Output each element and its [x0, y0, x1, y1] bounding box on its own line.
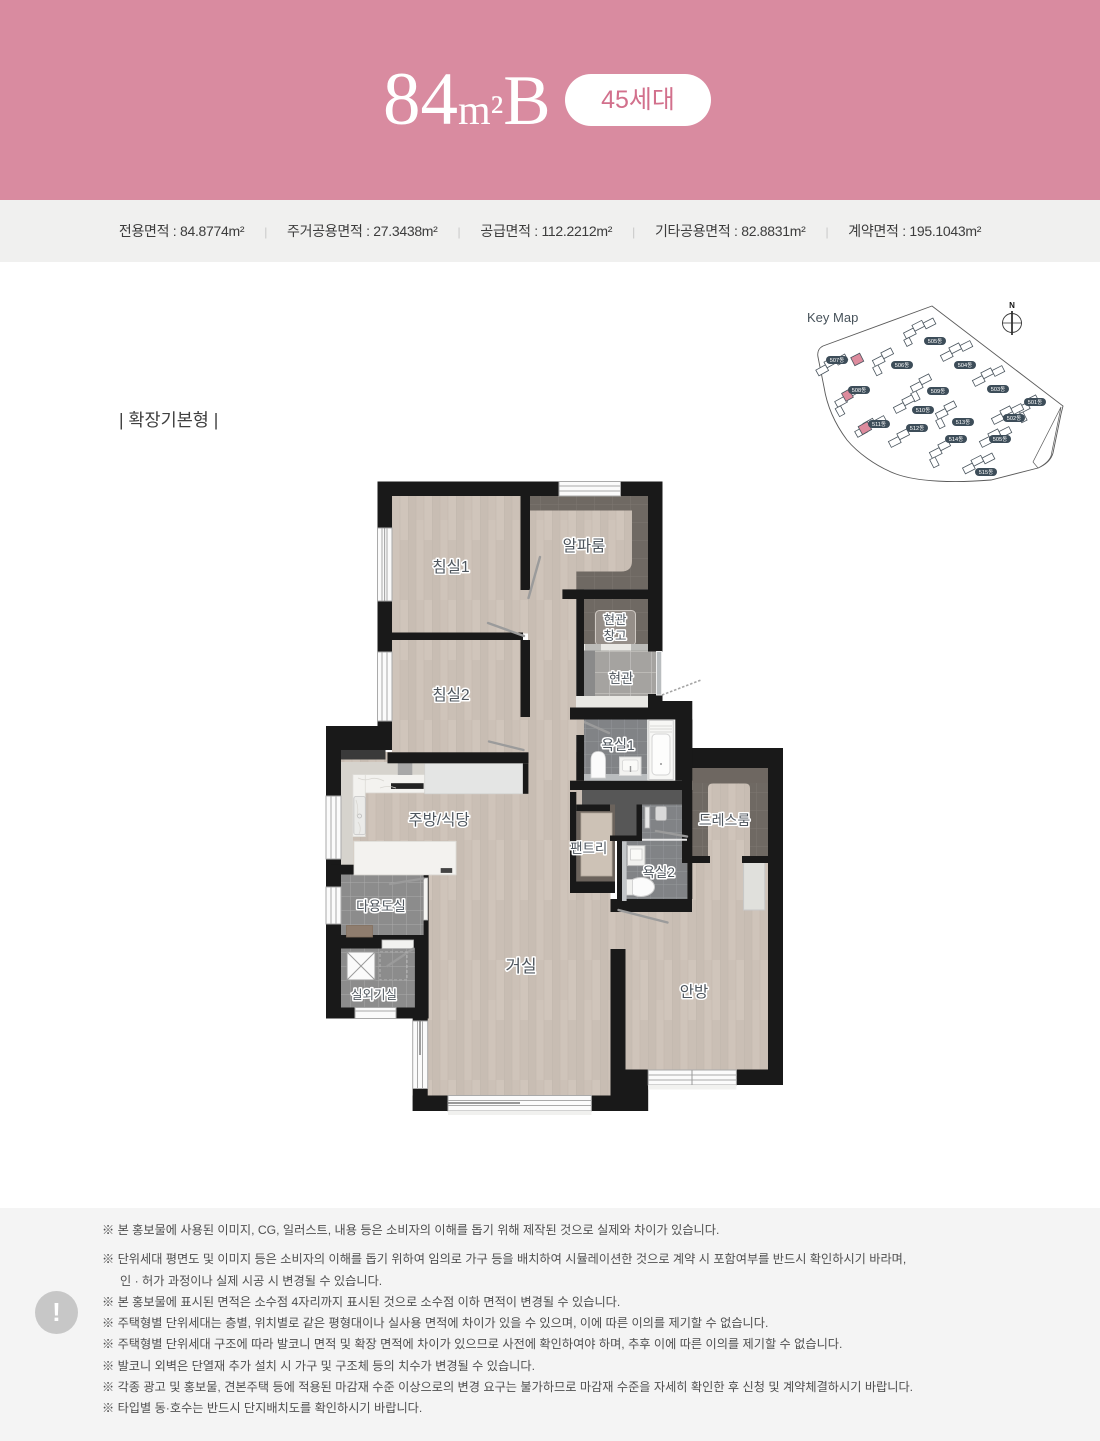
- svg-text:502동: 502동: [1007, 415, 1021, 422]
- svg-text:거실: 거실: [505, 957, 536, 976]
- svg-text:알파룸: 알파룸: [563, 537, 606, 555]
- svg-text:515동: 515동: [979, 469, 993, 476]
- svg-text:501동: 501동: [1028, 399, 1042, 406]
- svg-text:511동: 511동: [872, 421, 886, 428]
- svg-text:다용도실: 다용도실: [356, 899, 406, 914]
- svg-text:508동: 508동: [852, 387, 866, 394]
- svg-text:512동: 512동: [910, 425, 924, 432]
- svg-text:514동: 514동: [949, 436, 963, 443]
- svg-text:506동: 506동: [895, 362, 909, 369]
- svg-text:510동: 510동: [916, 407, 930, 414]
- svg-text:창고: 창고: [603, 629, 626, 643]
- svg-text:욕실2: 욕실2: [643, 865, 675, 880]
- svg-text:실외기실: 실외기실: [351, 988, 397, 1002]
- svg-text:509동: 509동: [931, 388, 945, 395]
- svg-text:현관: 현관: [609, 671, 634, 686]
- svg-text:503동: 503동: [991, 386, 1005, 393]
- svg-text:주방/식당: 주방/식당: [408, 811, 469, 829]
- svg-text:507동: 507동: [830, 357, 844, 364]
- svg-text:504동: 504동: [958, 362, 972, 369]
- svg-text:안방: 안방: [680, 983, 709, 1001]
- svg-text:505동: 505동: [928, 338, 942, 345]
- svg-text:드레스룸: 드레스룸: [699, 812, 751, 828]
- svg-text:침실1: 침실1: [432, 558, 469, 576]
- svg-text:현관: 현관: [603, 613, 627, 627]
- svg-text:팬트리: 팬트리: [570, 841, 607, 856]
- svg-text:욕실1: 욕실1: [601, 737, 635, 753]
- svg-text:505동: 505동: [993, 436, 1007, 443]
- svg-text:Key Map: Key Map: [807, 310, 858, 325]
- svg-text:N: N: [1009, 301, 1015, 310]
- svg-text:513동: 513동: [956, 419, 970, 426]
- svg-text:침실2: 침실2: [432, 686, 469, 704]
